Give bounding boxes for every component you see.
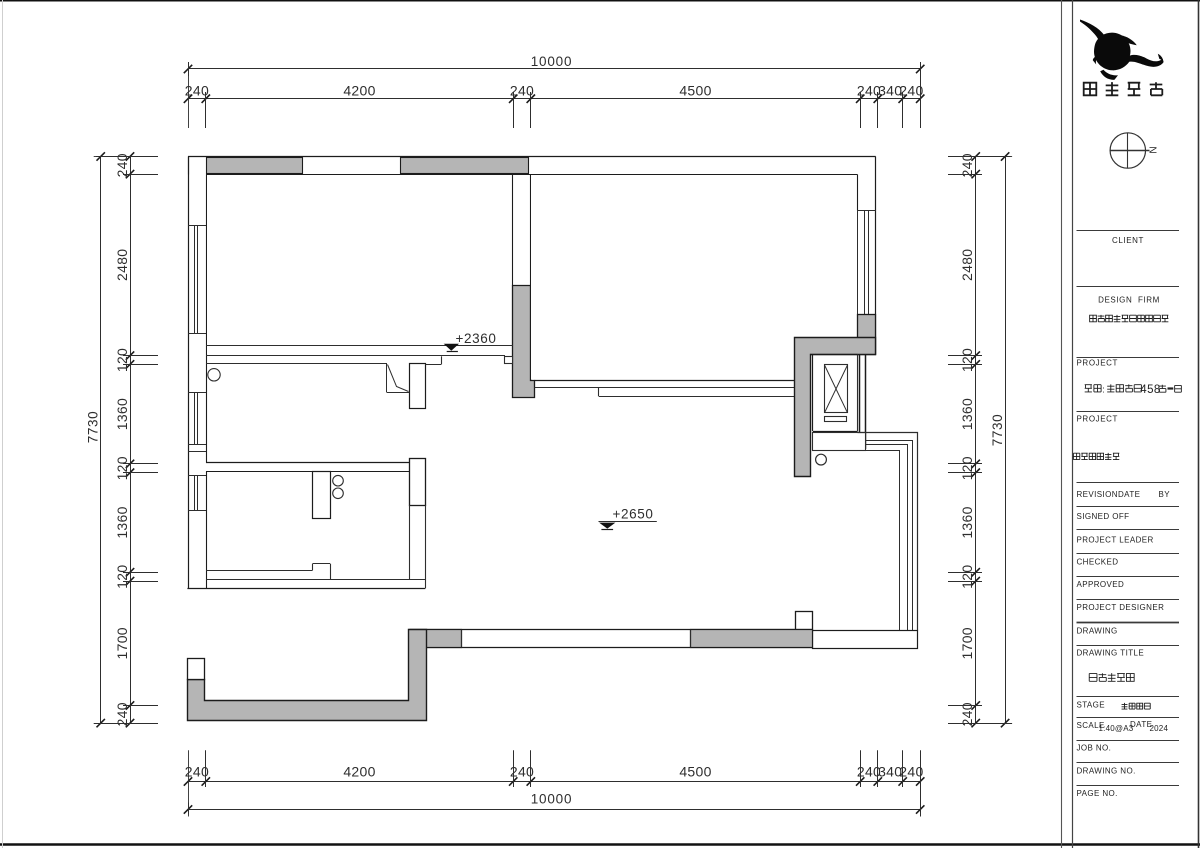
- svg-text:1360: 1360: [959, 398, 975, 430]
- svg-text:2480: 2480: [114, 249, 130, 281]
- svg-text:240: 240: [959, 702, 975, 726]
- svg-text:4200: 4200: [343, 83, 375, 99]
- svg-text:10000: 10000: [531, 54, 573, 69]
- svg-text:CLIENT: CLIENT: [1112, 236, 1144, 245]
- svg-text:7730: 7730: [990, 414, 1005, 446]
- svg-text:120: 120: [114, 456, 130, 480]
- svg-text:DRAWING NO.: DRAWING NO.: [1077, 766, 1136, 775]
- svg-text:120: 120: [959, 456, 975, 480]
- svg-text::: :: [1102, 385, 1105, 395]
- svg-text:DATE: DATE: [1118, 490, 1140, 499]
- svg-text:240: 240: [185, 764, 209, 780]
- svg-text:4500: 4500: [679, 764, 711, 780]
- svg-text:+2650: +2650: [613, 507, 654, 522]
- svg-text:1360: 1360: [114, 398, 130, 430]
- svg-text:PROJECT: PROJECT: [1077, 414, 1119, 423]
- svg-text:240: 240: [959, 153, 975, 177]
- svg-text:240: 240: [899, 83, 923, 99]
- svg-text:240: 240: [899, 764, 923, 780]
- svg-text:PAGE NO.: PAGE NO.: [1077, 789, 1118, 798]
- svg-text:1700: 1700: [114, 627, 130, 659]
- svg-text:DRAWING: DRAWING: [1077, 627, 1118, 636]
- svg-text:240: 240: [510, 764, 534, 780]
- svg-text:STAGE: STAGE: [1077, 700, 1106, 709]
- svg-text:458: 458: [1140, 384, 1160, 396]
- svg-text:1360: 1360: [959, 506, 975, 538]
- svg-text:CHECKED: CHECKED: [1077, 557, 1119, 566]
- svg-text:120: 120: [114, 565, 130, 589]
- svg-text:120: 120: [959, 348, 975, 372]
- svg-text:N: N: [1147, 146, 1158, 153]
- svg-text:PROJECT DESIGNER: PROJECT DESIGNER: [1077, 603, 1165, 612]
- svg-text:120: 120: [959, 565, 975, 589]
- svg-text:4500: 4500: [679, 83, 711, 99]
- svg-text:PROJECT: PROJECT: [1077, 359, 1119, 368]
- svg-text:10000: 10000: [531, 792, 573, 807]
- svg-text:2480: 2480: [959, 249, 975, 281]
- svg-text:JOB NO.: JOB NO.: [1077, 744, 1112, 753]
- svg-text:SIGNED OFF: SIGNED OFF: [1077, 512, 1130, 521]
- svg-text:240: 240: [114, 153, 130, 177]
- svg-text:BY: BY: [1159, 490, 1171, 499]
- svg-text:+2360: +2360: [456, 331, 497, 346]
- svg-text:DESIGN FIRM: DESIGN FIRM: [1098, 295, 1160, 304]
- svg-text:1360: 1360: [114, 506, 130, 538]
- svg-text:APPROVED: APPROVED: [1077, 580, 1125, 589]
- svg-text:240: 240: [510, 83, 534, 99]
- svg-text:240: 240: [185, 83, 209, 99]
- svg-text:4200: 4200: [343, 764, 375, 780]
- svg-text:1700: 1700: [959, 627, 975, 659]
- svg-text:120: 120: [114, 348, 130, 372]
- svg-text:7730: 7730: [86, 411, 101, 443]
- svg-text:240: 240: [114, 702, 130, 726]
- svg-text:REVISION: REVISION: [1077, 490, 1118, 499]
- svg-text:DRAWING TITLE: DRAWING TITLE: [1077, 648, 1145, 657]
- svg-text:2024: 2024: [1150, 724, 1169, 733]
- svg-text:PROJECT LEADER: PROJECT LEADER: [1077, 536, 1154, 545]
- svg-text:1:40@A3: 1:40@A3: [1099, 724, 1134, 733]
